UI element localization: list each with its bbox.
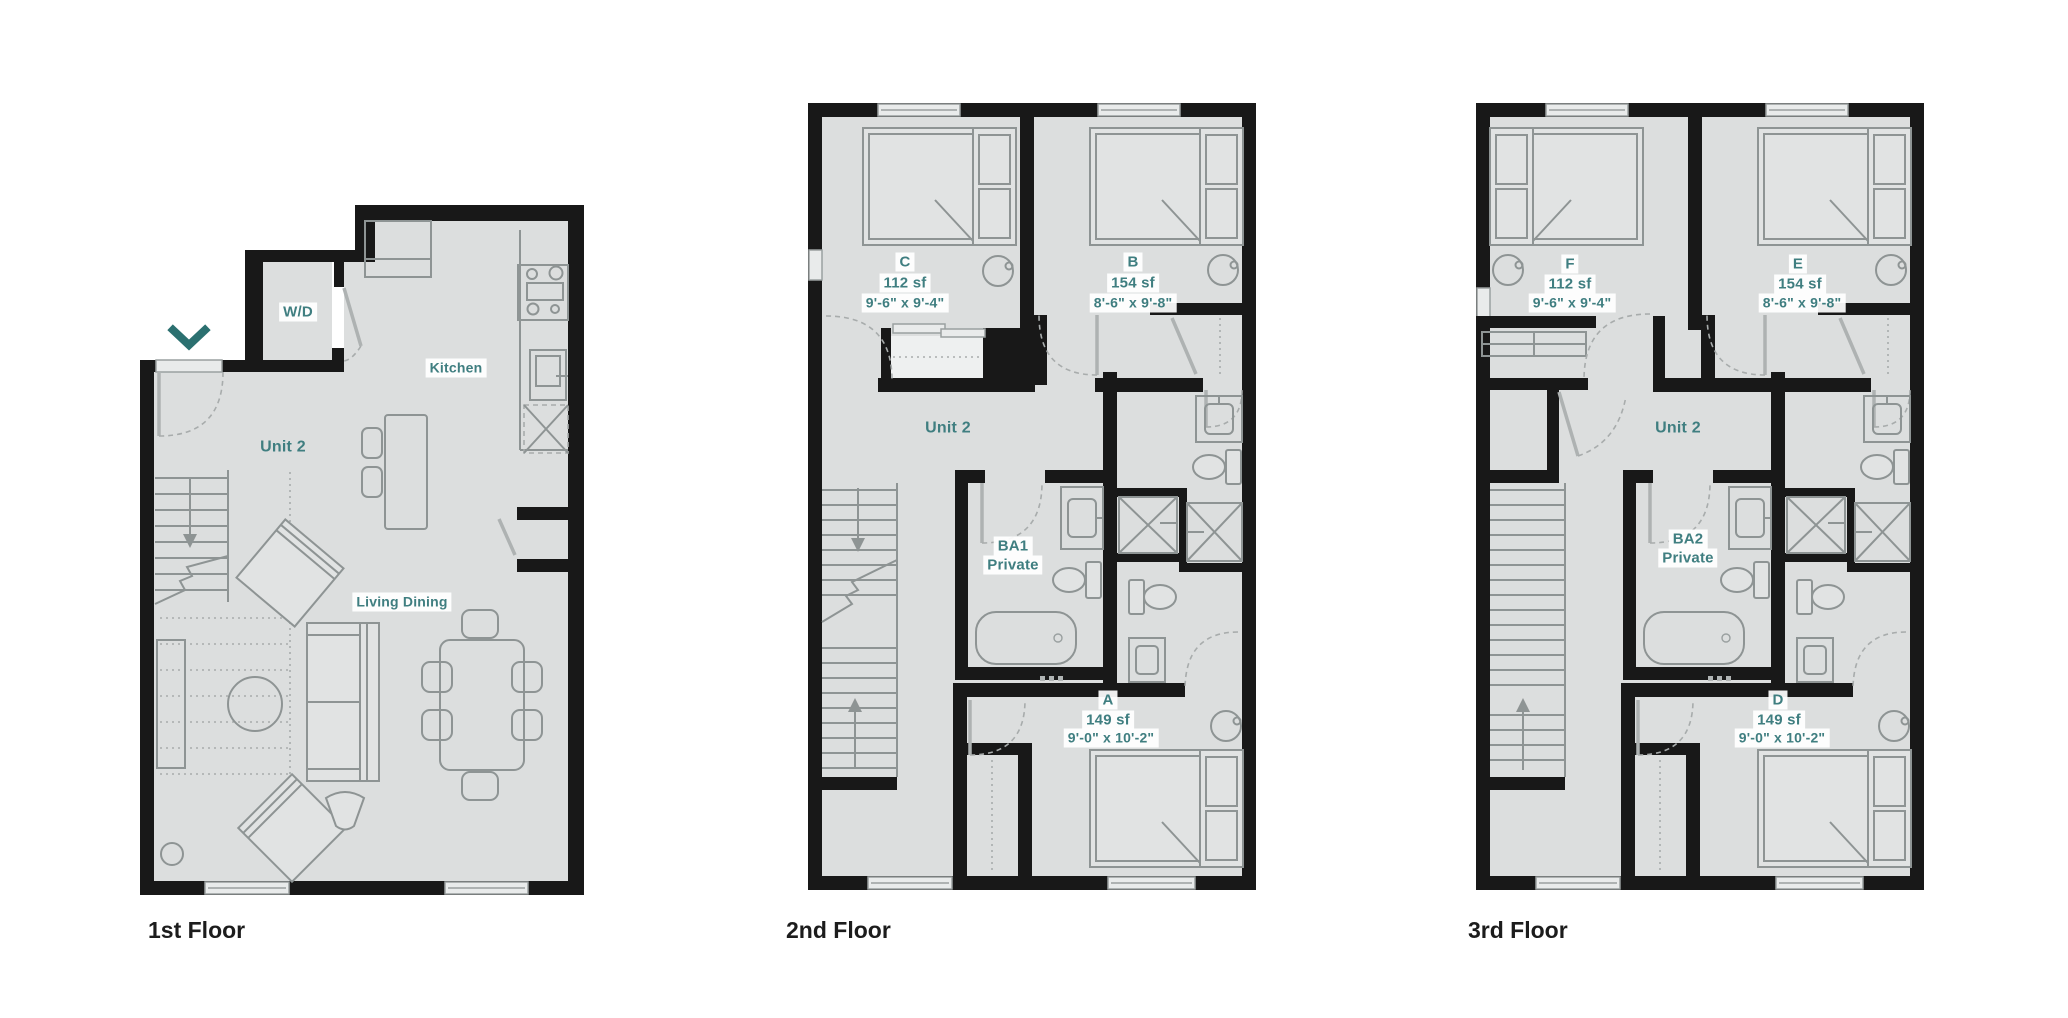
entry-chevron-down-icon bbox=[173, 330, 205, 345]
area-label-b: 154 sf bbox=[1107, 274, 1159, 293]
plan-3rd-floor bbox=[1476, 103, 1924, 890]
bed-C bbox=[863, 128, 1016, 245]
room-label-wd: W/D bbox=[279, 303, 317, 322]
area-label-a: 149 sf bbox=[1082, 711, 1134, 730]
area-label-c: 112 sf bbox=[880, 274, 931, 293]
bath-label-ba1-private: Private bbox=[983, 556, 1042, 575]
floor-caption-2: 2nd Floor bbox=[786, 917, 891, 944]
room-label-unit2-2f: Unit 2 bbox=[925, 419, 971, 438]
plan-2nd-floor bbox=[808, 103, 1256, 890]
bed-F bbox=[1490, 128, 1643, 245]
room-label-kitchen: Kitchen bbox=[426, 359, 487, 378]
floor-caption-3: 3rd Floor bbox=[1468, 917, 1568, 944]
bed-D bbox=[1758, 750, 1911, 867]
room-label-living-dining: Living Dining bbox=[352, 593, 451, 612]
plan-1st-floor bbox=[140, 205, 584, 895]
bedroom-label-e: E bbox=[1789, 255, 1807, 274]
bed-A bbox=[1090, 750, 1243, 867]
floorplan-sheet: W/D Kitchen Unit 2 Living Dining C 112 s… bbox=[0, 0, 2068, 1018]
area-label-d: 149 sf bbox=[1753, 711, 1805, 730]
dims-label-a: 9'-0" x 10'-2" bbox=[1064, 729, 1159, 748]
bedroom-label-d: D bbox=[1768, 691, 1787, 710]
dims-label-c: 9'-6" x 9'-4" bbox=[862, 294, 949, 313]
bedroom-label-b: B bbox=[1123, 253, 1142, 272]
dims-label-b: 8'-6" x 9'-8" bbox=[1090, 294, 1177, 313]
dims-label-d: 9'-0" x 10'-2" bbox=[1735, 729, 1830, 748]
floorplan-drawing bbox=[0, 0, 2068, 1018]
room-label-unit2-1f: Unit 2 bbox=[260, 438, 306, 457]
bath-label-ba2-private: Private bbox=[1658, 549, 1717, 568]
bed-B bbox=[1090, 128, 1243, 245]
bath-label-ba1: BA1 bbox=[994, 537, 1033, 556]
bedroom-label-f: F bbox=[1561, 255, 1578, 274]
dims-label-f: 9'-6" x 9'-4" bbox=[1529, 294, 1616, 313]
bedroom-label-c: C bbox=[895, 253, 914, 272]
room-label-unit2-3f: Unit 2 bbox=[1655, 419, 1701, 438]
dims-label-e: 8'-6" x 9'-8" bbox=[1759, 294, 1846, 313]
floor-caption-1: 1st Floor bbox=[148, 917, 245, 944]
bedroom-label-a: A bbox=[1098, 691, 1117, 710]
area-label-f: 112 sf bbox=[1545, 275, 1596, 294]
bed-E bbox=[1758, 128, 1911, 245]
area-label-e: 154 sf bbox=[1774, 275, 1826, 294]
bath-label-ba2: BA2 bbox=[1669, 530, 1708, 549]
